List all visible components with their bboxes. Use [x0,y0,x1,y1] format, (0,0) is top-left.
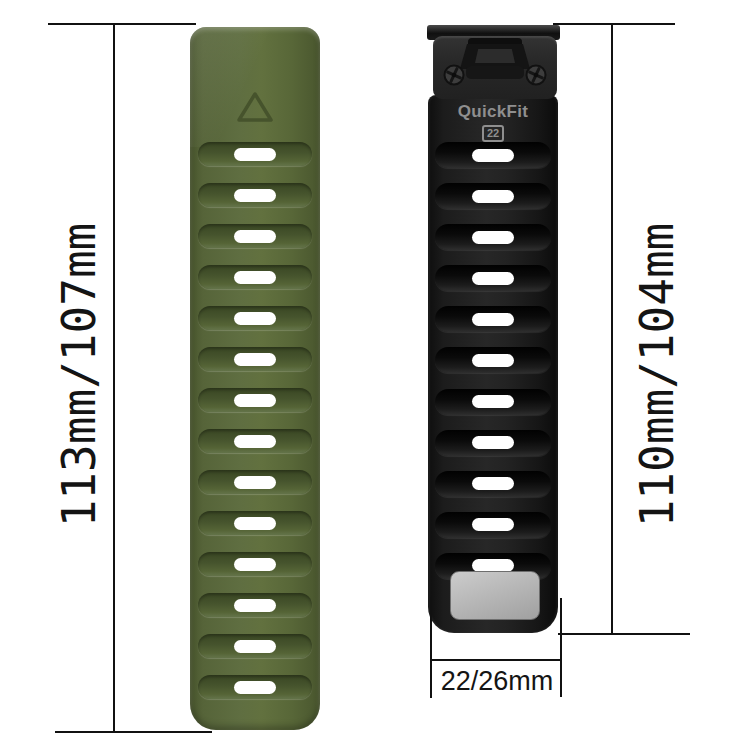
strap-rib-row [198,552,312,576]
band-highlight [190,27,320,147]
right-dimension-line [611,24,613,635]
strap-slot-hole [472,436,514,449]
strap-rib-row [198,265,312,289]
strap-slot-hole [472,518,514,531]
width-dimension-left-extension [430,597,432,698]
strap-slot-hole [234,271,276,284]
strap-slot-hole [472,477,514,490]
watch-band-spec-image: QuickFit 22 113mm/107mm 110mm/104mm 22/2… [0,0,750,750]
strap-rib-row [435,512,551,538]
strap-slot-hole [234,558,276,571]
strap-slot-hole [472,313,514,326]
left-dimension-bottom-cap [55,731,212,733]
strap-slot-hole [234,312,276,325]
strap-slot-hole [234,394,276,407]
strap-slot-hole [472,231,514,244]
connector-size-wrap: 22 [428,123,558,142]
latch-lip [466,66,524,79]
quickfit-connector-plate [433,36,557,99]
strap-slot-hole [234,681,276,694]
quickfit-brand-label: QuickFit [428,102,558,122]
strap-slot-hole [234,640,276,653]
black-band-slot-rows [435,142,551,579]
strap-slot-hole [234,189,276,202]
strap-rib-row [435,183,551,209]
strap-slot-hole [472,190,514,203]
metal-keeper-plate [450,571,540,620]
screw-icon [525,64,547,86]
strap-rib-row [435,471,551,497]
strap-slot-hole [234,230,276,243]
strap-slot-hole [472,395,514,408]
screw-icon [443,64,465,86]
green-watch-band [190,27,320,730]
strap-slot-hole [472,149,514,162]
width-dimension-line [430,659,562,661]
strap-rib-row [435,347,551,373]
strap-rib-row [435,224,551,250]
strap-rib-row [198,470,312,494]
strap-rib-row [435,306,551,332]
strap-slot-hole [472,354,514,367]
black-watch-band [428,95,558,633]
strap-rib-row [198,224,312,248]
strap-slot-hole [234,599,276,612]
strap-rib-row [435,142,551,168]
width-dimension-right-extension [560,598,562,697]
strap-slot-hole [234,353,276,366]
connector-size-label: 22 [482,125,504,142]
strap-rib-row [198,388,312,412]
strap-rib-row [198,593,312,617]
strap-rib-row [198,306,312,330]
left-dimension-top-cap [48,23,196,25]
strap-rib-row [435,430,551,456]
strap-slot-hole [472,272,514,285]
left-length-label: 113mm/107mm [52,223,106,528]
strap-rib-row [198,142,312,166]
strap-rib-row [198,347,312,371]
strap-rib-row [435,389,551,415]
strap-rib-row [198,429,312,453]
strap-rib-row [435,265,551,291]
right-dimension-top-cap [553,23,675,25]
latch-cutout [475,49,515,63]
strap-slot-hole [234,517,276,530]
triangle-marker-icon [236,91,274,123]
right-length-label: 110mm/104mm [630,223,684,528]
right-dimension-bottom-cap [558,633,690,635]
strap-rib-row [198,183,312,207]
strap-rib-row [198,675,312,699]
strap-rib-row [198,634,312,658]
band-width-label: 22/26mm [441,666,554,697]
strap-slot-hole [234,476,276,489]
strap-rib-row [198,511,312,535]
strap-slot-hole [234,148,276,161]
left-dimension-line [113,24,115,733]
green-band-slot-rows [198,142,312,699]
strap-slot-hole [234,435,276,448]
